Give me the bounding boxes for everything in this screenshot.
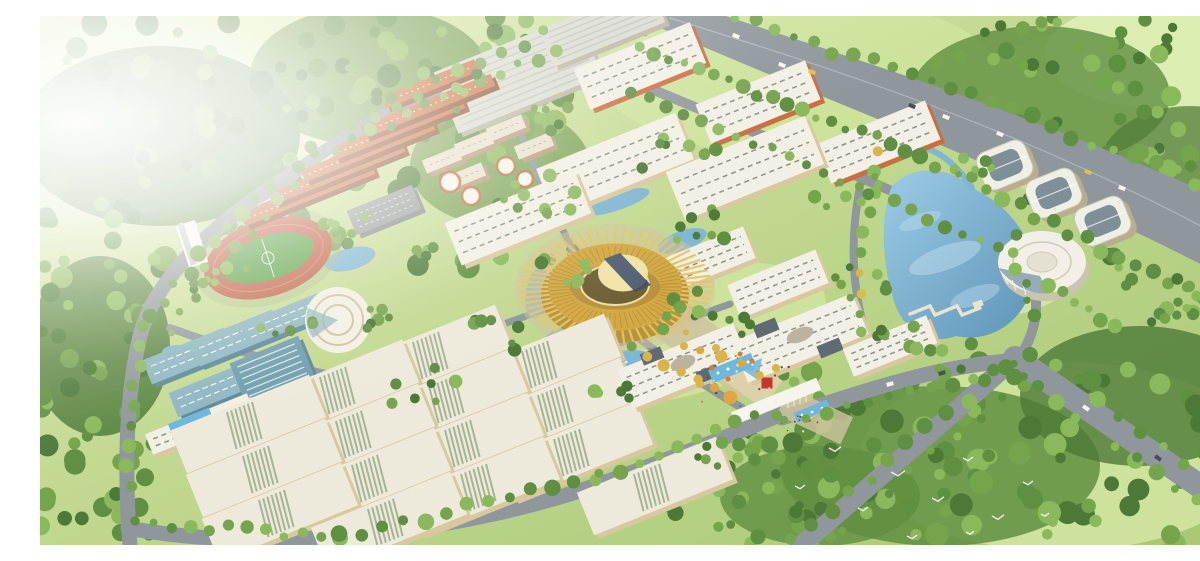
light-sheen xyxy=(40,16,1200,545)
rendering-canvas xyxy=(40,16,1200,545)
aerial-campus-masterplan-rendering xyxy=(40,16,1200,545)
